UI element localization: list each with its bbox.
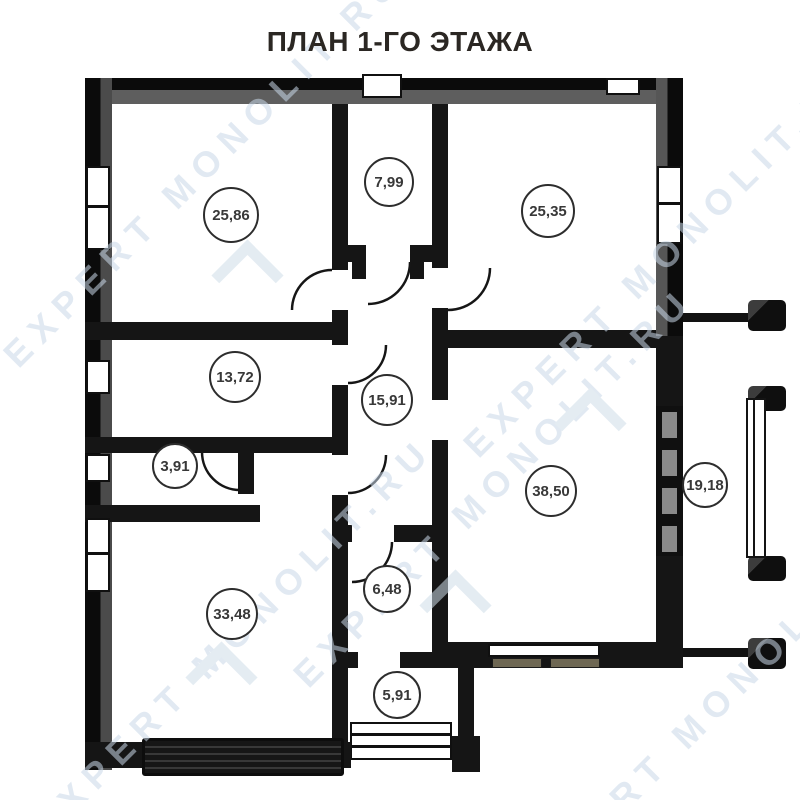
- room-area-badge-bottom-left: 33,48: [206, 588, 258, 640]
- room-area-label: 5,91: [382, 687, 411, 704]
- room-area-badge-hall: 15,91: [361, 374, 413, 426]
- room-area-badge-wc: 3,91: [152, 443, 198, 489]
- room-area-label: 38,50: [532, 483, 570, 500]
- room-area-label: 3,91: [160, 458, 189, 475]
- room-area-badge-bottom-middle: 6,48: [363, 565, 411, 613]
- room-area-label: 25,86: [212, 207, 250, 224]
- room-area-badge-vestibule: 5,91: [373, 671, 421, 719]
- room-area-label: 6,48: [372, 581, 401, 598]
- room-area-label: 25,35: [529, 203, 567, 220]
- room-area-label: 13,72: [216, 369, 254, 386]
- room-area-badge-living-right: 38,50: [525, 465, 577, 517]
- room-area-badge-top-right: 25,35: [521, 184, 575, 238]
- room-area-label: 7,99: [374, 174, 403, 191]
- room-area-badge-terrace: 19,18: [682, 462, 728, 508]
- room-area-badge-mid-left: 13,72: [209, 351, 261, 403]
- room-area-label: 15,91: [368, 392, 406, 409]
- room-area-label: 19,18: [686, 477, 724, 494]
- room-area-label: 33,48: [213, 606, 251, 623]
- page-title: ПЛАН 1-ГО ЭТАЖА: [0, 26, 800, 58]
- floor-plan: ПЛАН 1-ГО ЭТАЖА: [0, 0, 800, 800]
- room-area-badge-top-left: 25,86: [203, 187, 259, 243]
- room-area-badge-top-middle: 7,99: [364, 157, 414, 207]
- room-badges-layer: 25,867,9925,3513,7215,913,9138,5019,1833…: [0, 0, 800, 800]
